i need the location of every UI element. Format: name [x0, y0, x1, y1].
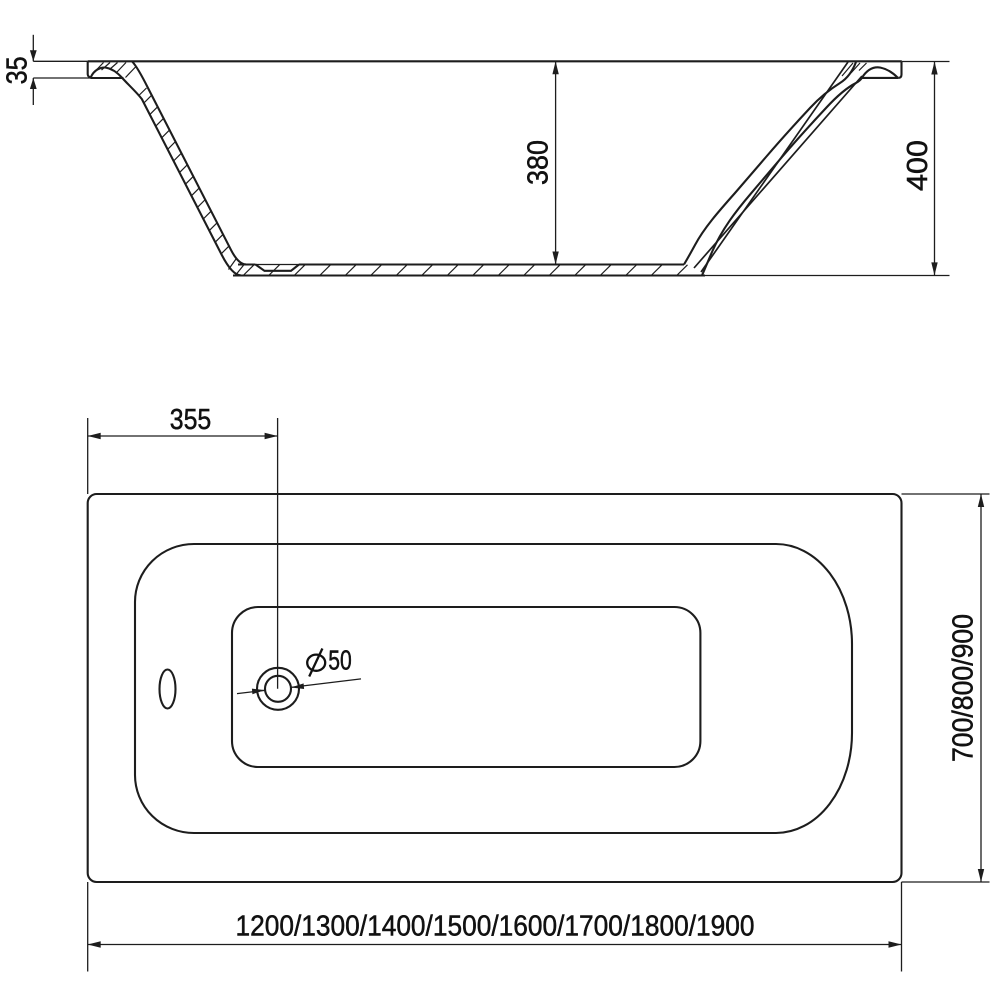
svg-text:1200/1300/1400/1500/1600/1700/: 1200/1300/1400/1500/1600/1700/1800/1900 — [236, 911, 755, 943]
svg-text:50: 50 — [328, 644, 352, 675]
svg-text:380: 380 — [523, 140, 555, 185]
svg-text:700/800/900: 700/800/900 — [948, 614, 980, 762]
svg-text:35: 35 — [2, 56, 34, 84]
svg-text:400: 400 — [902, 140, 934, 191]
svg-text:355: 355 — [170, 404, 212, 436]
